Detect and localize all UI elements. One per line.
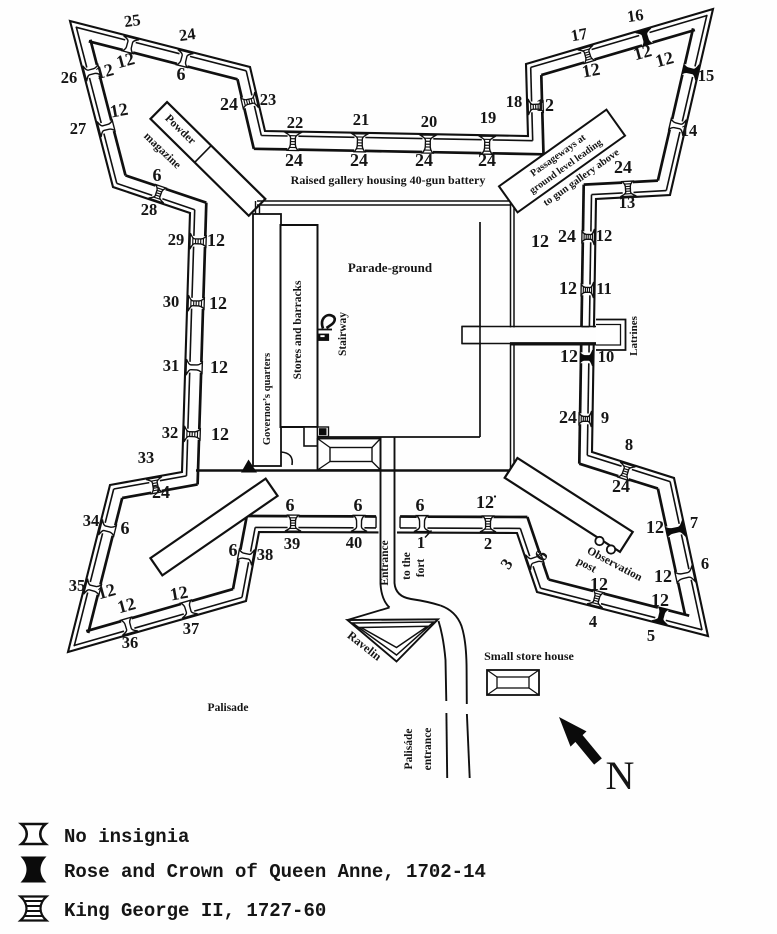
svg-text:29: 29 [168, 230, 185, 249]
svg-text:16: 16 [626, 5, 645, 26]
svg-text:Small store house: Small store house [484, 649, 574, 663]
svg-text:2: 2 [484, 534, 492, 553]
svg-text:1: 1 [417, 533, 425, 552]
svg-text:Stores and barracks: Stores and barracks [292, 280, 304, 379]
svg-text:12: 12 [596, 226, 613, 245]
svg-text:King George II, 1727-60: King George II, 1727-60 [64, 900, 326, 922]
svg-text:Rose and Crown of Queen Anne,: Rose and Crown of Queen Anne, 1702-14 [64, 861, 486, 883]
svg-text:Latrines: Latrines [628, 315, 640, 355]
svg-text:fort: fort [415, 559, 427, 578]
svg-text:Raised gallery housing 40-gun: Raised gallery housing 40-gun battery [291, 173, 486, 187]
svg-text:12: 12 [211, 424, 229, 444]
svg-text:12: 12 [654, 566, 672, 586]
svg-text:12: 12 [651, 590, 669, 610]
svg-text:24: 24 [614, 157, 632, 177]
svg-text:5: 5 [647, 626, 655, 645]
svg-text:12: 12 [559, 278, 577, 298]
svg-text:24: 24 [559, 407, 577, 427]
svg-text:entrance: entrance [422, 728, 434, 771]
svg-text:12: 12 [210, 357, 228, 377]
svg-text:39: 39 [284, 534, 301, 553]
svg-text:37: 37 [183, 619, 200, 638]
svg-text:24: 24 [285, 150, 303, 170]
svg-text:23: 23 [260, 90, 277, 109]
svg-text:12: 12 [560, 346, 578, 366]
svg-text:24: 24 [350, 150, 368, 170]
svg-text:9: 9 [601, 408, 609, 427]
svg-text:Entrance: Entrance [379, 540, 391, 585]
svg-text:Palisáde: Palisáde [403, 729, 415, 770]
svg-text:12: 12 [646, 517, 664, 537]
svg-text:12: 12 [168, 582, 189, 605]
svg-text:24: 24 [612, 476, 630, 496]
svg-text:24: 24 [478, 150, 496, 170]
svg-text:21: 21 [353, 110, 370, 129]
svg-text:13: 13 [619, 193, 636, 212]
svg-text:No insignia: No insignia [64, 826, 189, 848]
svg-text:10: 10 [598, 347, 615, 366]
svg-text:38: 38 [257, 545, 274, 564]
svg-text:15: 15 [698, 66, 715, 85]
svg-text:12: 12 [209, 293, 227, 313]
svg-text:33: 33 [138, 448, 155, 467]
svg-text:36: 36 [122, 633, 139, 652]
svg-text:12: 12 [580, 59, 601, 82]
svg-text:6: 6 [229, 540, 238, 560]
svg-text:6: 6 [354, 495, 363, 515]
svg-text:28: 28 [141, 200, 158, 219]
svg-text:12: 12 [536, 95, 554, 115]
svg-text:11: 11 [596, 279, 612, 298]
svg-text:N: N [606, 753, 635, 798]
svg-text:19: 19 [480, 108, 497, 127]
svg-text:12: 12 [590, 574, 608, 594]
svg-text:6: 6 [286, 495, 295, 515]
svg-text:12: 12 [531, 231, 549, 251]
svg-text:8: 8 [625, 435, 633, 454]
svg-text:7: 7 [690, 513, 698, 532]
svg-text:32: 32 [162, 423, 179, 442]
svg-text:Parade-ground: Parade-ground [348, 260, 433, 275]
svg-text:27: 27 [70, 119, 87, 138]
svg-text:35: 35 [69, 576, 86, 595]
svg-text:18: 18 [506, 92, 523, 111]
svg-text:12: 12 [207, 230, 225, 250]
svg-text:24: 24 [178, 24, 197, 45]
svg-text:4: 4 [589, 612, 597, 631]
svg-text:24: 24 [220, 94, 238, 114]
svg-text:22: 22 [287, 113, 304, 132]
svg-text:6: 6 [416, 495, 425, 515]
svg-text:6: 6 [701, 554, 709, 573]
svg-text:24: 24 [558, 226, 576, 246]
svg-text:6: 6 [121, 518, 130, 538]
svg-text:12: 12 [476, 492, 494, 512]
svg-text:30: 30 [163, 292, 180, 311]
svg-text:31: 31 [163, 356, 180, 375]
svg-text:to the: to the [401, 552, 413, 580]
svg-text:12: 12 [108, 99, 129, 122]
svg-text:24: 24 [415, 150, 433, 170]
svg-text:6: 6 [153, 165, 162, 185]
svg-text:40: 40 [346, 533, 363, 552]
svg-text:24: 24 [152, 482, 170, 502]
svg-text:Stairway: Stairway [337, 312, 349, 356]
svg-text:26: 26 [61, 68, 78, 87]
svg-text:Palisade: Palisade [208, 702, 249, 714]
svg-text:14: 14 [681, 121, 698, 140]
svg-text:6: 6 [177, 64, 186, 84]
svg-text:20: 20 [421, 112, 438, 131]
svg-text:25: 25 [123, 10, 142, 31]
svg-text:17: 17 [569, 24, 589, 46]
svg-text:Governor’s quarters: Governor’s quarters [262, 353, 273, 445]
svg-text:34: 34 [83, 511, 100, 530]
